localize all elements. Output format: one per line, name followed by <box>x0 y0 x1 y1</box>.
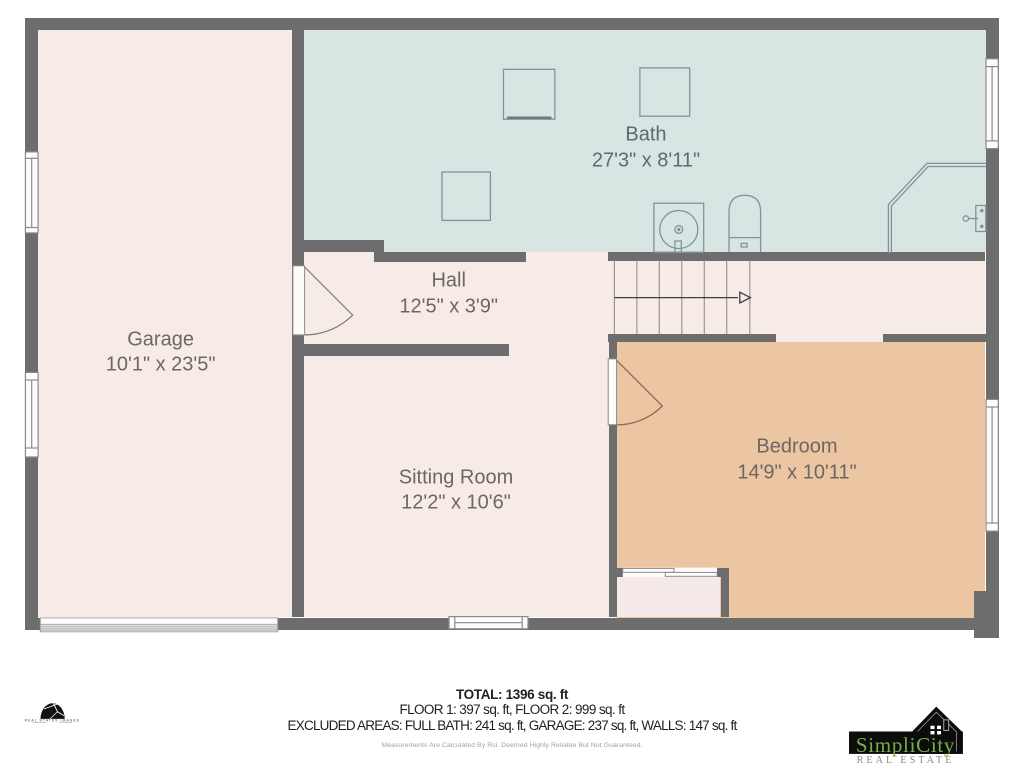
svg-text:REAL STATES IMAGES: REAL STATES IMAGES <box>25 718 80 722</box>
svg-text:SimpliCity: SimpliCity <box>856 733 955 757</box>
svg-text:REAL ESTATE: REAL ESTATE <box>857 755 955 766</box>
